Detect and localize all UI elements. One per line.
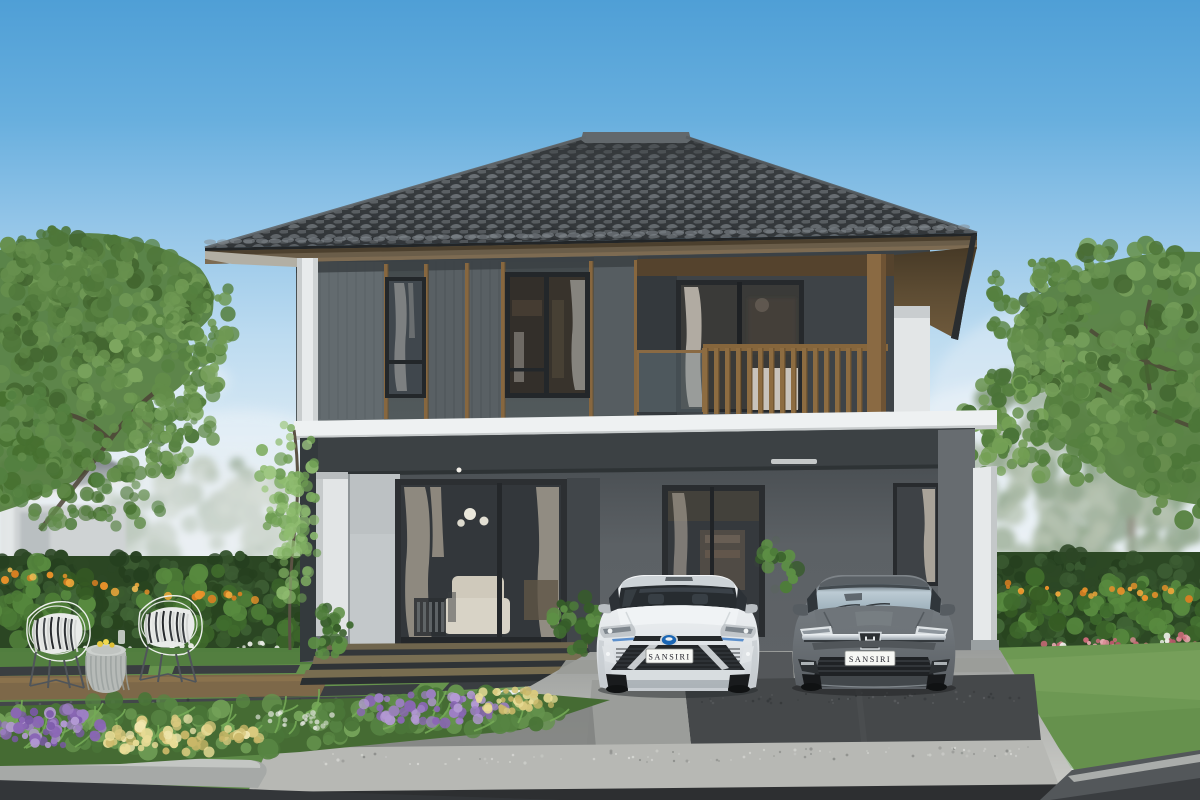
svg-text:SANSIRI: SANSIRI <box>648 653 690 662</box>
svg-text:SANSIRI: SANSIRI <box>849 655 891 664</box>
